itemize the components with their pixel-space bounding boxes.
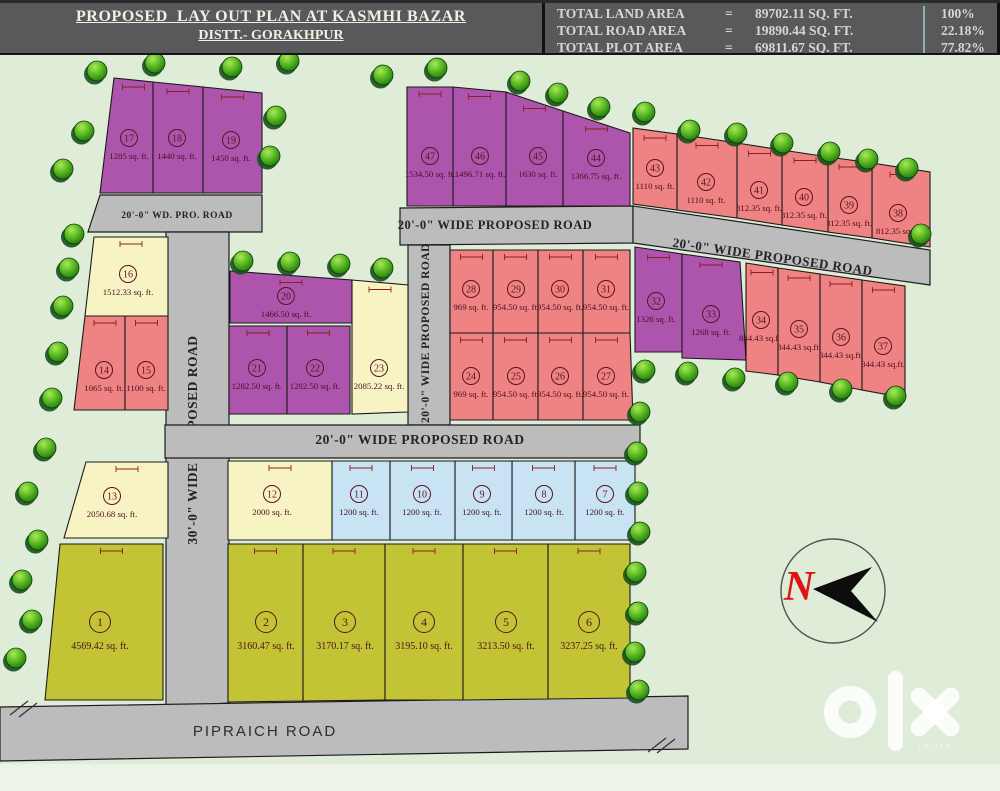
- plot-19-area: 1450 sq. ft.: [211, 153, 251, 163]
- tree-icon: [627, 442, 647, 462]
- tree-icon: [373, 258, 393, 278]
- plot-30-area: 954.50 sq. ft.: [537, 302, 583, 312]
- plan-subtitle: DISTT.- GORAKHPUR: [0, 28, 542, 44]
- plot-45-polygon: [506, 92, 563, 206]
- tree-icon: [22, 610, 42, 630]
- road-label: 20'-0" WD. PRO. ROAD: [121, 211, 232, 221]
- plot-32-area: 1326 sq. ft.: [636, 314, 676, 324]
- tree-icon: [87, 61, 107, 81]
- tree-icon: [628, 602, 648, 622]
- plot-45-area: 1630 sq. ft.: [518, 169, 558, 179]
- tree-icon: [635, 102, 655, 122]
- plot-2-area: 3160.47 sq. ft.: [237, 641, 295, 652]
- plot-8-area: 1200 sq. ft.: [524, 507, 564, 517]
- road-label: 20'-0" WIDE PROPOSED ROAD: [420, 243, 432, 423]
- plot-7-area: 1200 sq. ft.: [585, 507, 625, 517]
- tree-icon: [64, 224, 84, 244]
- plot-33-area: 1268 sq. ft.: [691, 327, 731, 337]
- equals-sign: =: [725, 40, 755, 55]
- plot-14-number: 14: [99, 366, 109, 377]
- table-row: TOTAL PLOT AREA = 69811.67 SQ. FT. 77.82…: [557, 40, 997, 55]
- plot-37-number: 37: [878, 342, 888, 353]
- plot-18-area: 1440 sq. ft.: [157, 151, 197, 161]
- plot-44-number: 44: [591, 154, 601, 165]
- tree-icon: [629, 680, 649, 700]
- road-label: 20'-0" WIDE PROPOSED ROAD: [398, 218, 593, 232]
- plot-4-area: 3195.10 sq. ft.: [395, 641, 453, 652]
- plot-11-area: 1200 sq. ft.: [339, 507, 379, 517]
- plot-24-area: 969 sq. ft.: [453, 389, 488, 399]
- plot-37-polygon: [862, 280, 905, 398]
- plot-27-area: 954.50 sq. ft.: [583, 389, 629, 399]
- plot-9-area: 1200 sq. ft.: [462, 507, 502, 517]
- plot-47-area: 1534.50 sq. ft.: [405, 169, 456, 179]
- tree-icon: [74, 121, 94, 141]
- plot-31-area: 954.50 sq. ft.: [583, 302, 629, 312]
- olx-watermark-sub: INDIA: [918, 742, 954, 751]
- plot-14-area: 1065 sq. ft.: [84, 383, 124, 393]
- tree-icon: [630, 402, 650, 422]
- plot-9-number: 9: [480, 490, 485, 501]
- plot-25-number: 25: [511, 372, 521, 383]
- tree-icon: [886, 386, 906, 406]
- plot-46-polygon: [453, 87, 506, 206]
- plot-35-number: 35: [794, 325, 804, 336]
- plot-16-area: 1512.33 sq. ft.: [103, 287, 154, 297]
- tree-icon: [778, 372, 798, 392]
- tree-icon: [6, 648, 26, 668]
- plot-33-number: 33: [706, 310, 716, 321]
- plot-28-area: 969 sq. ft.: [453, 302, 488, 312]
- table-row: TOTAL ROAD AREA = 19890.44 SQ. FT. 22.18…: [557, 23, 997, 40]
- plot-21-number: 21: [252, 364, 262, 375]
- plot-22-area: 1282.50 sq. ft.: [290, 381, 341, 391]
- tree-icon: [590, 97, 610, 117]
- plot-22-number: 22: [310, 364, 320, 375]
- plot-15-number: 15: [141, 366, 151, 377]
- plot-25-area: 954.50 sq. ft.: [493, 389, 539, 399]
- plot-26-area: 954.50 sq. ft.: [537, 389, 583, 399]
- plot-44-area: 1366.75 sq. ft.: [571, 171, 622, 181]
- tree-icon: [820, 142, 840, 162]
- plot-6-area: 3237.25 sq. ft.: [560, 641, 618, 652]
- plot-10-area: 1200 sq. ft.: [402, 507, 442, 517]
- plot-20-area: 1466.50 sq. ft.: [261, 309, 312, 319]
- plot-43-number: 43: [650, 164, 660, 175]
- tree-icon: [625, 642, 645, 662]
- plot-1-area: 4569.42 sq. ft.: [71, 641, 129, 652]
- plot-3-area: 3170.17 sq. ft.: [316, 641, 374, 652]
- tree-icon: [773, 133, 793, 153]
- north-letter: N: [783, 564, 816, 610]
- tree-icon: [260, 146, 280, 166]
- plot-2-number: 2: [263, 615, 269, 629]
- plot-26-number: 26: [555, 372, 565, 383]
- bottom-strip: [0, 764, 1000, 791]
- plot-40-number: 40: [799, 193, 809, 204]
- plot-33-polygon: [682, 254, 746, 360]
- plot-47-number: 47: [425, 152, 435, 163]
- tree-icon: [18, 482, 38, 502]
- plot-46-number: 46: [475, 152, 485, 163]
- plot-32-number: 32: [651, 297, 661, 308]
- plot-42-number: 42: [701, 178, 711, 189]
- tree-icon: [635, 360, 655, 380]
- plot-12-polygon: [228, 461, 332, 540]
- tree-icon: [330, 254, 350, 274]
- plot-16-number: 16: [123, 270, 133, 281]
- layout-plan-screenshot: 20'-0" WD. PRO. ROAD30'-0" WIDE PROPOSED…: [0, 0, 1000, 791]
- plot-23-number: 23: [374, 364, 384, 375]
- plot-41-area: 812.35 sq. ft.: [736, 203, 782, 213]
- equals-sign: =: [725, 6, 755, 23]
- tree-icon: [53, 159, 73, 179]
- plot-17-number: 17: [124, 134, 134, 145]
- tree-icon: [911, 224, 931, 244]
- tree-icon: [725, 368, 745, 388]
- layout-plan-svg: 20'-0" WD. PRO. ROAD30'-0" WIDE PROPOSED…: [0, 0, 1000, 791]
- road-surface: [0, 696, 688, 761]
- stat-percent: 77.82%: [923, 40, 985, 55]
- plot-35-area: 844.43 sq.ft.: [777, 342, 821, 352]
- tree-icon: [548, 83, 568, 103]
- plot-17-area: 1285 sq. ft.: [109, 151, 149, 161]
- tree-icon: [898, 158, 918, 178]
- tree-icon: [42, 388, 62, 408]
- tree-icon: [222, 57, 242, 77]
- tree-icon: [630, 522, 650, 542]
- plot-23-area: 2085.22 sq. ft.: [354, 381, 405, 391]
- plot-3-number: 3: [342, 615, 348, 629]
- stat-value: 89702.11 SQ. FT.: [755, 6, 923, 23]
- tree-icon: [510, 71, 530, 91]
- stat-label: TOTAL LAND AREA: [557, 6, 725, 23]
- tree-icon: [233, 251, 253, 271]
- plot-5-number: 5: [503, 615, 509, 629]
- stat-percent: 100%: [923, 6, 975, 23]
- plot-11-number: 11: [354, 490, 364, 501]
- tree-icon: [48, 342, 68, 362]
- tree-icon: [53, 296, 73, 316]
- tree-icon: [626, 562, 646, 582]
- plot-15-polygon: [125, 316, 168, 410]
- plot-42-area: 1110 sq. ft.: [687, 195, 726, 205]
- stat-value: 19890.44 SQ. FT.: [755, 23, 923, 40]
- plot-8-number: 8: [542, 490, 547, 501]
- stat-value: 69811.67 SQ. FT.: [755, 40, 923, 55]
- plot-13-area: 2050.68 sq. ft.: [87, 509, 138, 519]
- plot-1-polygon: [45, 544, 163, 700]
- road-label: 20'-0" WIDE PROPOSED ROAD: [315, 432, 524, 447]
- plot-24-number: 24: [466, 372, 476, 383]
- plan-title: PROPOSED LAY OUT PLAN AT KASMHI BAZAR: [0, 8, 542, 26]
- plot-47-polygon: [407, 87, 453, 206]
- plot-7-number: 7: [603, 490, 608, 501]
- plot-31-number: 31: [601, 285, 611, 296]
- plan-title-block: PROPOSED LAY OUT PLAN AT KASMHI BAZAR DI…: [0, 3, 545, 53]
- plot-46-area: 1496.71 sq. ft.: [455, 169, 506, 179]
- plot-34-number: 34: [756, 316, 766, 327]
- tree-icon: [727, 123, 747, 143]
- plot-41-number: 41: [754, 186, 764, 197]
- plot-45-number: 45: [533, 152, 543, 163]
- tree-icon: [59, 258, 79, 278]
- tree-icon: [858, 149, 878, 169]
- olx-watermark-o-hole: [839, 701, 862, 724]
- table-row: TOTAL LAND AREA = 89702.11 SQ. FT. 100%: [557, 6, 997, 23]
- tree-icon: [266, 106, 286, 126]
- plot-43-area: 1110 sq. ft.: [636, 181, 675, 191]
- tree-icon: [36, 438, 56, 458]
- tree-icon: [280, 252, 300, 272]
- plot-36-area: 844.43 sq.ft.: [819, 350, 863, 360]
- plot-21-area: 1282.50 sq. ft.: [232, 381, 283, 391]
- plot-1-number: 1: [97, 615, 103, 629]
- title-bar: PROPOSED LAY OUT PLAN AT KASMHI BAZAR DI…: [0, 0, 1000, 55]
- tree-icon: [427, 58, 447, 78]
- tree-icon: [832, 379, 852, 399]
- tree-icon: [678, 362, 698, 382]
- tree-icon: [373, 65, 393, 85]
- plot-15-area: 1100 sq. ft.: [126, 383, 165, 393]
- tree-icon: [28, 530, 48, 550]
- road-label: PIPRAICH ROAD: [193, 723, 337, 740]
- olx-watermark-bar: [888, 671, 903, 751]
- plot-42-polygon: [677, 134, 737, 218]
- plot-13-number: 13: [107, 492, 117, 503]
- plot-39-area: 812.35 sq. ft.: [826, 218, 872, 228]
- plot-27-number: 27: [601, 372, 611, 383]
- plot-40-area: 812.35 sq. ft.: [781, 210, 827, 220]
- plot-19-number: 19: [226, 136, 236, 147]
- plot-23-polygon: [352, 280, 408, 414]
- tree-icon: [628, 482, 648, 502]
- stat-label: TOTAL ROAD AREA: [557, 23, 725, 40]
- plot-30-number: 30: [555, 285, 565, 296]
- plot-29-area: 954.50 sq. ft.: [493, 302, 539, 312]
- stat-label: TOTAL PLOT AREA: [557, 40, 725, 55]
- plot-28-number: 28: [466, 285, 476, 296]
- plot-4-number: 4: [421, 615, 427, 629]
- plot-36-number: 36: [836, 333, 846, 344]
- area-summary-table: TOTAL LAND AREA = 89702.11 SQ. FT. 100% …: [545, 3, 1000, 53]
- tree-icon: [145, 53, 165, 73]
- plot-6-number: 6: [586, 615, 592, 629]
- tree-icon: [680, 120, 700, 140]
- plot-12-number: 12: [267, 490, 277, 501]
- plot-37-area: 844.43 sq.ft.: [861, 359, 905, 369]
- plot-39-number: 39: [844, 201, 854, 212]
- plot-20-number: 20: [281, 292, 291, 303]
- plot-18-number: 18: [172, 134, 182, 145]
- plot-38-number: 38: [893, 209, 903, 220]
- equals-sign: =: [725, 23, 755, 40]
- tree-icon: [12, 570, 32, 590]
- plot-12-area: 2000 sq. ft.: [252, 507, 292, 517]
- stat-percent: 22.18%: [923, 23, 985, 40]
- plot-5-area: 3213.50 sq. ft.: [477, 641, 535, 652]
- plot-10-number: 10: [417, 490, 427, 501]
- plot-29-number: 29: [511, 285, 521, 296]
